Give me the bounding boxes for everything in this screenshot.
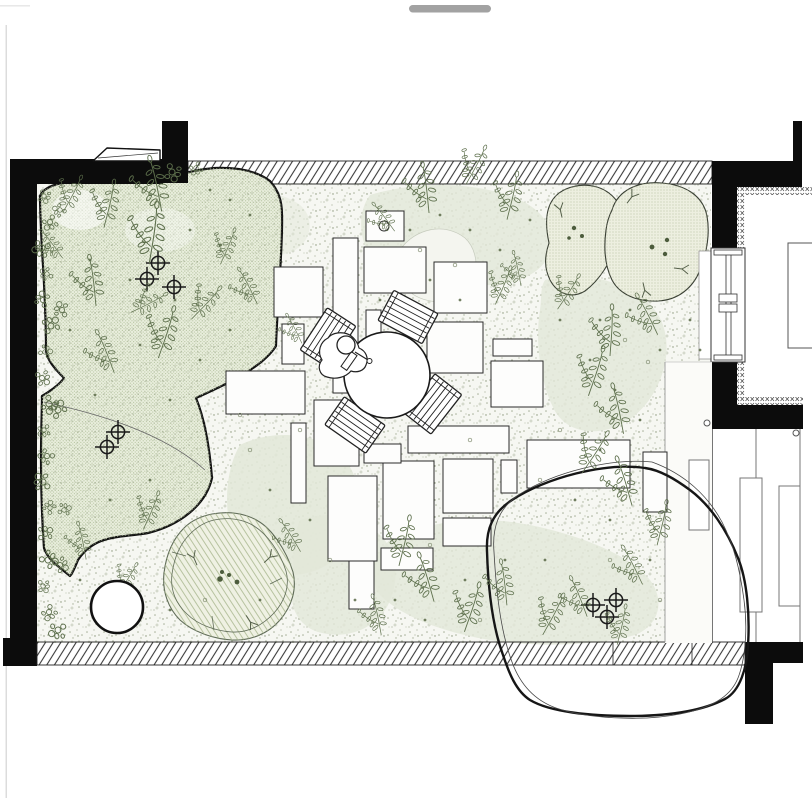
paving-stone bbox=[282, 324, 304, 364]
scatter-dot bbox=[499, 249, 502, 252]
mound-seed-dot bbox=[580, 234, 584, 238]
glazed-door-assembly bbox=[699, 248, 745, 362]
scatter-dot bbox=[649, 559, 652, 562]
scatter-dot bbox=[699, 349, 702, 352]
paving-stone bbox=[527, 440, 630, 488]
paving-stone bbox=[491, 361, 543, 407]
paving-stone bbox=[443, 459, 493, 513]
scatter-dot bbox=[69, 329, 72, 332]
sheet-corner-mark bbox=[0, 5, 30, 7]
wall-top-right bbox=[712, 161, 802, 187]
paving-stone bbox=[381, 548, 433, 570]
mound-seed-dot bbox=[567, 236, 571, 240]
bottom-wall-band bbox=[37, 642, 745, 665]
paving-stone bbox=[427, 322, 483, 373]
scatter-dot bbox=[259, 599, 262, 602]
paving-stone bbox=[364, 247, 426, 293]
mound-seed-dot bbox=[650, 245, 655, 250]
paving-stone bbox=[408, 426, 509, 453]
scatter-dot bbox=[94, 394, 97, 397]
scatter-dot bbox=[169, 609, 172, 612]
paving-stone bbox=[328, 476, 377, 561]
paving-stone bbox=[493, 339, 532, 356]
door-handle bbox=[719, 294, 737, 302]
paving-stone bbox=[443, 518, 491, 546]
scatter-dot bbox=[169, 399, 172, 402]
scatter-dot bbox=[354, 599, 357, 602]
scatter-dot bbox=[409, 229, 412, 232]
scatter-dot bbox=[429, 279, 432, 282]
scatter-dot bbox=[199, 359, 202, 362]
scatter-dot bbox=[79, 579, 82, 582]
scatter-dot bbox=[599, 319, 602, 322]
scatter-dot bbox=[139, 344, 142, 347]
scatter-dot bbox=[309, 519, 312, 522]
door-pivot-dot bbox=[793, 430, 799, 436]
scatter-dot bbox=[559, 319, 562, 322]
mound-seed-dot bbox=[217, 576, 223, 582]
scatter-dot bbox=[149, 479, 152, 482]
scatter-dot bbox=[209, 189, 212, 192]
wall-bottom-right-stub bbox=[745, 662, 773, 724]
wall-left-foot bbox=[3, 638, 37, 666]
sheet-edge-line bbox=[6, 25, 8, 798]
scatter-dot bbox=[544, 559, 547, 562]
room-top-right bbox=[788, 243, 812, 348]
scatter-dot bbox=[229, 329, 232, 332]
scatter-dot bbox=[394, 599, 397, 602]
scatter-dot bbox=[609, 519, 612, 522]
scatter-dot bbox=[689, 319, 692, 322]
paving-stone bbox=[434, 262, 487, 313]
scatter-dot bbox=[269, 489, 272, 492]
wall-right-upper bbox=[712, 187, 737, 250]
scatter-dot bbox=[129, 279, 132, 282]
deck-lounger bbox=[689, 460, 709, 530]
garden-plan-drawing bbox=[0, 0, 812, 800]
scatter-dot bbox=[424, 619, 427, 622]
scatter-dot bbox=[459, 299, 462, 302]
plan-sheet bbox=[0, 0, 812, 800]
deck-lounger bbox=[740, 478, 762, 612]
scatter-dot bbox=[439, 214, 442, 217]
scatter-dot bbox=[574, 499, 577, 502]
paving-stone bbox=[349, 561, 374, 609]
paving-stone bbox=[643, 452, 667, 512]
scatter-dot bbox=[529, 219, 532, 222]
paving-stone bbox=[226, 371, 305, 414]
wall-right-band bbox=[712, 405, 803, 429]
scatter-dot bbox=[469, 229, 472, 232]
paving-stone bbox=[291, 423, 306, 503]
paving-stone bbox=[383, 461, 434, 539]
scatter-dot bbox=[629, 309, 632, 312]
scatter-dot bbox=[109, 499, 112, 502]
scatter-dot bbox=[189, 229, 192, 232]
room-table bbox=[788, 243, 812, 348]
person-head bbox=[337, 336, 355, 354]
drag-handle-bar[interactable] bbox=[409, 5, 491, 13]
mound-seed-dot bbox=[235, 580, 240, 585]
planting-mound-b bbox=[605, 183, 708, 301]
scatter-dot bbox=[639, 419, 642, 422]
wall-left bbox=[10, 159, 37, 641]
scatter-dot bbox=[589, 359, 592, 362]
scatter-dot bbox=[229, 199, 232, 202]
scatter-dot bbox=[464, 579, 467, 582]
door-pivot-dot bbox=[704, 420, 710, 426]
scatter-dot bbox=[659, 349, 662, 352]
scatter-dot bbox=[504, 559, 507, 562]
mound-seed-dot bbox=[663, 252, 667, 256]
scatter-dot bbox=[249, 214, 252, 217]
person-hand bbox=[367, 359, 372, 364]
mound-seed-dot bbox=[572, 226, 576, 230]
scatter-dot bbox=[174, 299, 177, 302]
wall-pier-top-right bbox=[793, 121, 802, 162]
mound-seed-dot bbox=[665, 238, 669, 242]
deck-lounger bbox=[779, 486, 800, 606]
wall-right-lower bbox=[712, 360, 737, 407]
mound-seed-dot bbox=[220, 570, 224, 574]
lean-to-outline bbox=[93, 148, 160, 161]
wall-bottom-right-bar bbox=[745, 642, 803, 663]
paving-stone bbox=[501, 460, 517, 493]
planter-circle bbox=[91, 581, 143, 633]
paving-stone bbox=[274, 267, 323, 317]
scatter-dot bbox=[379, 299, 382, 302]
mound-seed-dot bbox=[227, 573, 231, 577]
